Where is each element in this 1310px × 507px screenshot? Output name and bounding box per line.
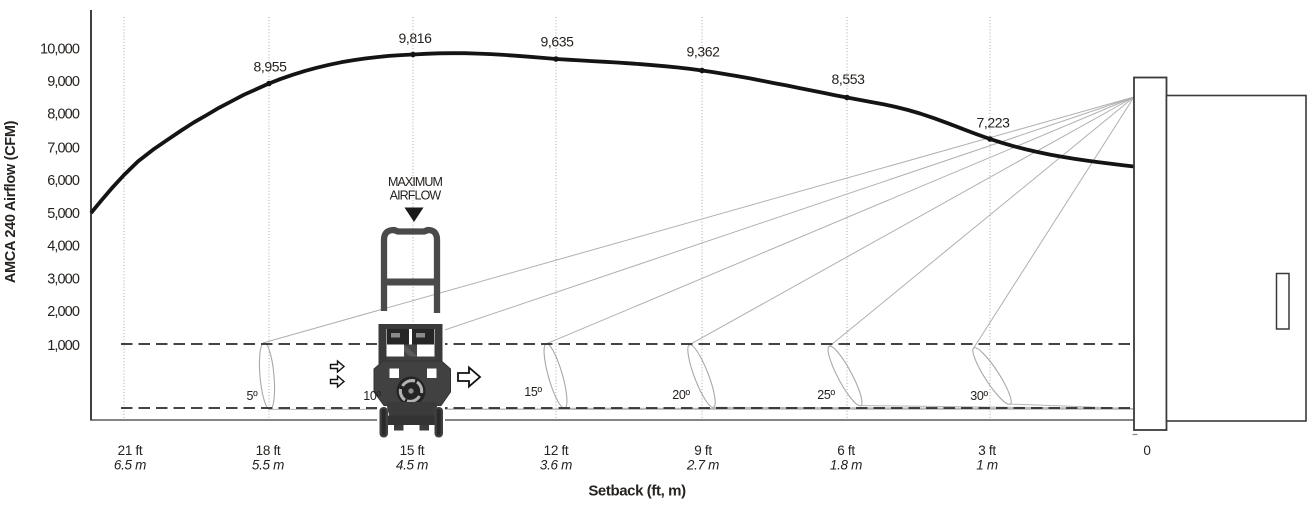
svg-text:8,553: 8,553 — [831, 71, 865, 87]
svg-text:6.5 m: 6.5 m — [114, 458, 146, 473]
svg-text:1,000: 1,000 — [47, 338, 80, 354]
svg-text:10º: 10º — [363, 389, 381, 403]
svg-text:AMCA 240 Airflow (CFM): AMCA 240 Airflow (CFM) — [3, 120, 19, 283]
svg-text:5.5 m: 5.5 m — [252, 458, 284, 473]
svg-text:15 ft: 15 ft — [400, 443, 425, 458]
svg-text:Setback (ft, m): Setback (ft, m) — [588, 483, 686, 500]
svg-text:15º: 15º — [524, 385, 542, 399]
svg-text:5,000: 5,000 — [47, 206, 80, 222]
svg-text:1 m: 1 m — [976, 458, 998, 473]
svg-text:9,362: 9,362 — [686, 44, 720, 60]
svg-text:1.8 m: 1.8 m — [830, 458, 862, 473]
svg-text:7,000: 7,000 — [47, 141, 80, 157]
svg-text:4.5 m: 4.5 m — [396, 458, 428, 473]
svg-text:9,000: 9,000 — [47, 74, 80, 90]
svg-text:3,000: 3,000 — [47, 272, 80, 288]
svg-text:9 ft: 9 ft — [694, 443, 712, 458]
svg-text:6,000: 6,000 — [47, 173, 80, 189]
svg-text:12 ft: 12 ft — [544, 443, 569, 458]
svg-text:21 ft: 21 ft — [118, 443, 143, 458]
svg-text:7,223: 7,223 — [976, 115, 1010, 131]
svg-text:AIRFLOW: AIRFLOW — [390, 189, 442, 203]
svg-text:4,000: 4,000 — [47, 239, 80, 255]
svg-text:8,955: 8,955 — [253, 59, 287, 75]
svg-text:18 ft: 18 ft — [256, 443, 281, 458]
svg-text:2,000: 2,000 — [47, 304, 80, 320]
svg-text:0: 0 — [1143, 443, 1150, 458]
svg-text:MAXIMUM: MAXIMUM — [388, 175, 443, 189]
svg-text:8,000: 8,000 — [47, 107, 80, 123]
svg-text:3.6 m: 3.6 m — [540, 458, 572, 473]
svg-text:10,000: 10,000 — [40, 42, 80, 58]
svg-text:30º: 30º — [970, 389, 988, 403]
svg-text:6 ft: 6 ft — [837, 443, 855, 458]
svg-text:20º: 20º — [672, 388, 690, 402]
svg-text:9,635: 9,635 — [540, 34, 574, 50]
svg-text:5º: 5º — [247, 389, 259, 403]
svg-text:9,816: 9,816 — [398, 30, 432, 46]
svg-text:3 ft: 3 ft — [978, 443, 996, 458]
svg-text:2.7 m: 2.7 m — [686, 458, 719, 473]
svg-text:25º: 25º — [817, 388, 835, 402]
